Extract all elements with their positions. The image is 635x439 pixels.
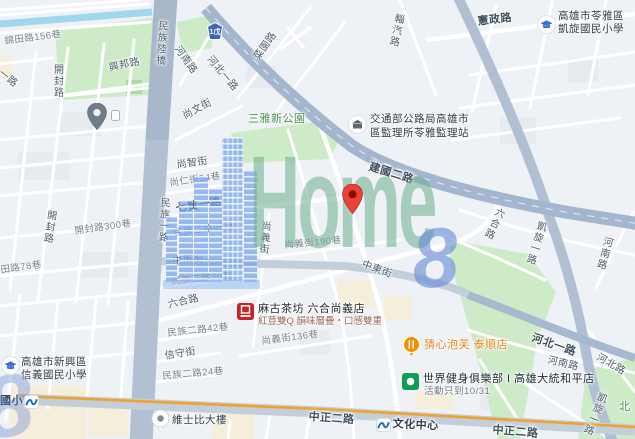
xinyi-school-icon[interactable] bbox=[1, 356, 20, 375]
weishibi-building-pin[interactable] bbox=[151, 409, 170, 433]
mrt-station-icon-guoxiao[interactable] bbox=[24, 395, 39, 409]
highway-shield-1: 1戊 bbox=[207, 22, 223, 40]
small-poi-box[interactable] bbox=[111, 110, 120, 121]
road-jianguo-centerline bbox=[206, 8, 635, 224]
map-root[interactable]: Home 8 8 錦田路156巷興邦路開封路一路民族陸橋河南路尚文街尚智街尚仁街… bbox=[0, 0, 635, 439]
restaurant-pin[interactable] bbox=[403, 336, 420, 357]
map-canvas[interactable] bbox=[0, 0, 635, 439]
svg-text:1戊: 1戊 bbox=[210, 27, 221, 36]
road-minzu-viaduct bbox=[157, 0, 166, 140]
road-jianguo bbox=[206, 8, 635, 224]
kaixuan-school-icon[interactable] bbox=[537, 15, 556, 34]
mrt-station-icon-cultural[interactable] bbox=[376, 418, 391, 432]
dmv-office-icon[interactable] bbox=[348, 115, 367, 134]
generic-gray-pin[interactable] bbox=[87, 103, 107, 130]
destination-red-pin[interactable] bbox=[342, 184, 363, 214]
worldgym-icon[interactable] bbox=[402, 373, 419, 390]
macu-teashop-icon[interactable] bbox=[237, 303, 254, 320]
